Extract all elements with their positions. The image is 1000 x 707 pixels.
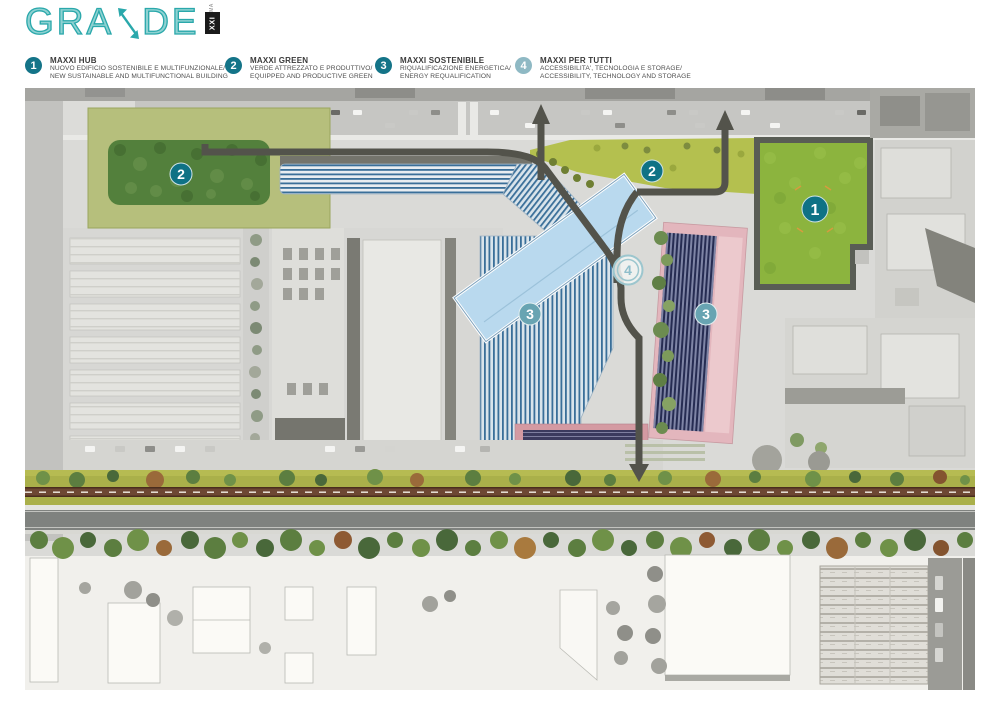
legend-title-3: MAXXI SOSTENIBILE bbox=[400, 56, 511, 65]
marker-per-tutti-4: 4 bbox=[614, 256, 643, 285]
legend-circle-3: 3 bbox=[375, 57, 392, 74]
pv-building-east bbox=[649, 222, 748, 443]
legend-item-maxxi-per-tutti: 4 MAXXI PER TUTTI ACCESSIBILITA', TECNOL… bbox=[515, 56, 691, 80]
logo-arrow-icon bbox=[113, 5, 143, 41]
legend-circle-4: 4 bbox=[515, 57, 532, 74]
svg-text:3: 3 bbox=[702, 306, 710, 322]
masterplan-board: GRA DE MA XXI 1 MAXXI HUB NUOVO EDIFICIO… bbox=[0, 0, 1000, 707]
cycle-path bbox=[25, 487, 975, 497]
grande-maxxi-logo: GRA DE MA XXI bbox=[25, 2, 220, 46]
marker-museum-3: 3 bbox=[519, 303, 541, 325]
logo-maxxi-sub: MA XXI bbox=[205, 4, 220, 34]
legend-item-maxxi-hub: 1 MAXXI HUB NUOVO EDIFICIO SOSTENIBILE E… bbox=[25, 56, 228, 80]
svg-text:1: 1 bbox=[811, 202, 820, 219]
east-road-south bbox=[928, 558, 975, 690]
marker-pv-building-3: 3 bbox=[695, 303, 717, 325]
industrial-district bbox=[63, 228, 503, 470]
rail-yard bbox=[820, 566, 928, 684]
marker-green-west-2: 2 bbox=[170, 163, 192, 185]
logo-ma-text: MA bbox=[209, 3, 216, 12]
legend-item-maxxi-sostenibile: 3 MAXXI SOSTENIBILE RIQUALIFICAZIONE ENE… bbox=[375, 56, 511, 80]
carriageway bbox=[25, 510, 975, 530]
legend: 1 MAXXI HUB NUOVO EDIFICIO SOSTENIBILE E… bbox=[25, 56, 975, 88]
site-plan-map: 1 2 2 3 3 4 bbox=[25, 88, 975, 690]
tree-lane bbox=[243, 228, 269, 468]
logo-xxi-box: XXI bbox=[205, 12, 220, 34]
svg-text:4: 4 bbox=[624, 262, 632, 278]
logo-text-de: DE bbox=[142, 2, 199, 42]
legend-circle-1: 1 bbox=[25, 57, 42, 74]
legend-title-4: MAXXI PER TUTTI bbox=[540, 56, 691, 65]
header: GRA DE MA XXI 1 MAXXI HUB NUOVO EDIFICIO… bbox=[25, 2, 975, 88]
warehouse-rows bbox=[70, 238, 240, 462]
marker-green-strip-2: 2 bbox=[641, 160, 663, 182]
factory-block bbox=[272, 228, 456, 470]
svg-text:2: 2 bbox=[648, 163, 656, 179]
legend-title-1: MAXXI HUB bbox=[50, 56, 228, 65]
marker-hub-1: 1 bbox=[802, 196, 828, 222]
logo-text-gra: GRA bbox=[25, 2, 114, 42]
legend-title-2: MAXXI GREEN bbox=[250, 56, 373, 65]
legend-item-maxxi-green: 2 MAXXI GREEN VERDE ATTREZZATO E PRODUTT… bbox=[225, 56, 373, 80]
south-boulevard bbox=[25, 469, 975, 559]
legend-circle-2: 2 bbox=[225, 57, 242, 74]
svg-text:2: 2 bbox=[177, 166, 185, 182]
svg-text:3: 3 bbox=[526, 306, 534, 322]
